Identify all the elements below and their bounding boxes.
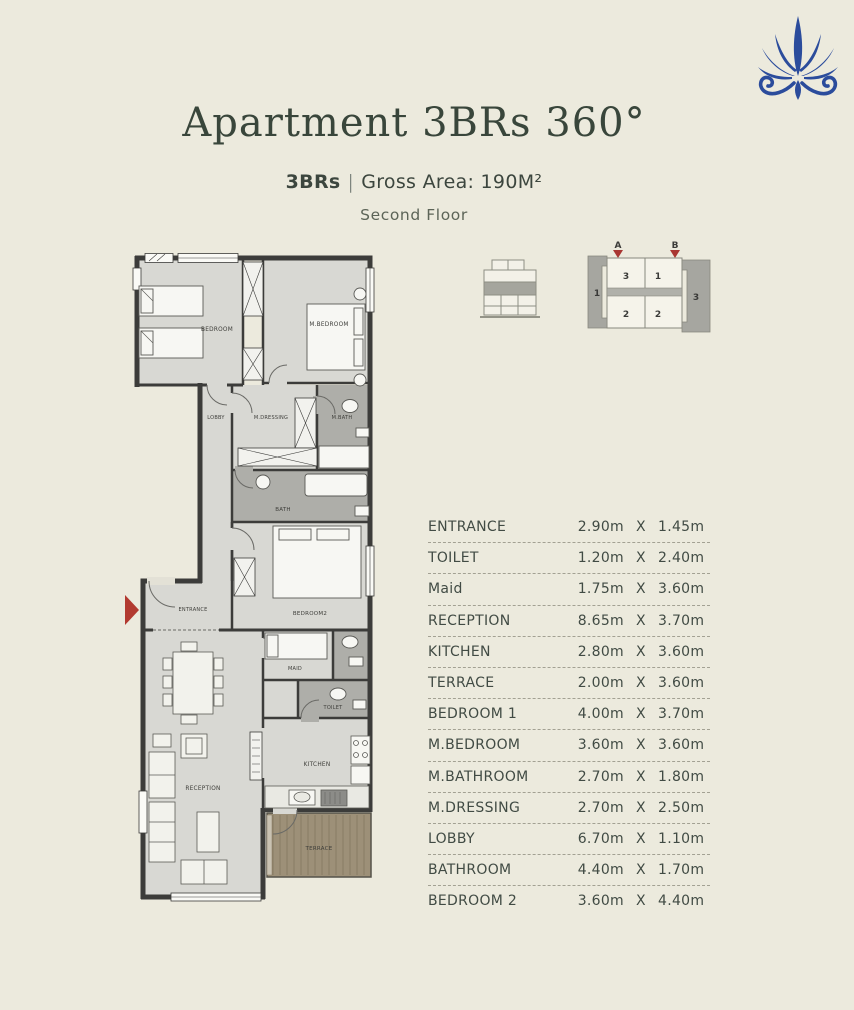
bedroom2-label: BEDROOM2 [293,611,327,617]
keyplan-corridor [607,288,682,296]
marker-a-label: A [615,241,622,251]
unit-number: 3 [623,272,629,282]
marker-a-arrow-icon [613,250,623,258]
room-name: BEDROOM 2 [428,893,568,909]
room-name: TOILET [428,550,568,566]
table-row: M.BEDROOM3.60mX3.60m [428,730,710,761]
table-row: RECEPTION8.65mX3.70m [428,606,710,637]
dim-depth: 1.10m [658,831,710,847]
table-row: LOBBY6.70mX1.10m [428,824,710,855]
unit-number: 1 [594,289,600,299]
dim-depth: 3.70m [658,706,710,722]
dim-width: 3.60m [568,893,624,909]
table-row: TERRACE2.00mX3.60m [428,668,710,699]
bath-label: BATH [275,507,291,513]
table-row: Maid1.75mX3.60m [428,574,710,605]
gross-area: Gross Area: 190M² [361,171,542,193]
dim-x: X [624,675,658,691]
key-plan-diagram: A B 1 3 3 1 2 2 [584,234,714,336]
unit-number: 2 [623,310,629,320]
maid-label: MAID [288,666,302,672]
unit-number: 2 [655,310,661,320]
dim-width: 4.00m [568,706,624,722]
room-entrance [143,581,232,628]
dim-width: 8.65m [568,613,624,629]
dim-width: 2.70m [568,769,624,785]
unit-number: 1 [655,272,661,282]
dim-x: X [624,613,658,629]
dim-depth: 3.60m [658,675,710,691]
dim-width: 2.90m [568,519,624,535]
table-row: TOILET1.20mX2.40m [428,543,710,574]
dim-depth: 4.40m [658,893,710,909]
table-row: M.BATHROOM2.70mX1.80m [428,762,710,793]
dim-width: 1.20m [568,550,624,566]
dim-width: 6.70m [568,831,624,847]
unit-type: 3BRs [286,171,341,193]
dim-depth: 2.50m [658,800,710,816]
room-bedroom [135,258,243,385]
room-name: BATHROOM [428,862,568,878]
table-row: ENTRANCE2.90mX1.45m [428,512,710,543]
dim-x: X [624,831,658,847]
dim-x: X [624,581,658,597]
dim-depth: 3.60m [658,737,710,753]
dim-x: X [624,862,658,878]
dim-x: X [624,893,658,909]
lobby-label: LOBBY [207,415,225,421]
brochure-page: Apartment 3BRs 360° 3BRs|Gross Area: 190… [0,0,854,1010]
dim-depth: 3.70m [658,613,710,629]
dim-x: X [624,737,658,753]
dim-depth: 3.60m [658,644,710,660]
room-name: RECEPTION [428,613,568,629]
room-name: LOBBY [428,831,568,847]
floor-label: Second Floor [0,206,828,224]
unit-number: 3 [693,293,699,303]
toilet-label: TOILET [323,705,344,711]
floor-plan: BEDROOM M.BEDROOM LOBBY M.DRESSING M.BAT… [123,248,375,908]
dim-depth: 1.70m [658,862,710,878]
reception-label: RECEPTION [185,786,220,792]
page-title: Apartment 3BRs 360° [0,100,828,146]
table-row: BEDROOM 14.00mX3.70m [428,699,710,730]
dim-x: X [624,550,658,566]
dim-width: 2.70m [568,800,624,816]
room-name: M.BATHROOM [428,769,568,785]
table-row: M.DRESSING2.70mX2.50m [428,793,710,824]
subtitle: 3BRs|Gross Area: 190M² [0,171,828,193]
dim-depth: 3.60m [658,581,710,597]
dim-depth: 1.45m [658,519,710,535]
entrance-label: ENTRANCE [178,607,207,613]
dim-width: 3.60m [568,737,624,753]
dim-width: 4.40m [568,862,624,878]
room-name: M.BEDROOM [428,737,568,753]
dim-depth: 2.40m [658,550,710,566]
dim-depth: 1.80m [658,769,710,785]
m-bedroom-label: M.BEDROOM [309,322,348,328]
dim-x: X [624,769,658,785]
m-bath-label: M.BATH [332,415,353,421]
bedroom-label: BEDROOM [201,327,233,333]
m-dressing-label: M.DRESSING [254,415,288,421]
subtitle-separator: | [341,171,362,193]
dim-x: X [624,644,658,660]
marker-b-arrow-icon [670,250,680,258]
table-row: KITCHEN2.80mX3.60m [428,637,710,668]
table-row: BATHROOM4.40mX1.70m [428,855,710,886]
palmette-logo-icon [748,10,848,110]
room-hall [263,680,298,720]
entrance-arrow-icon [125,595,139,625]
dim-width: 1.75m [568,581,624,597]
dim-width: 2.00m [568,675,624,691]
room-terrace [267,813,371,877]
dim-x: X [624,706,658,722]
terrace-label: TERRACE [305,846,333,852]
kitchen-label: KITCHEN [304,762,331,768]
room-name: BEDROOM 1 [428,706,568,722]
building-elevation-diagram [480,254,540,320]
room-name: M.DRESSING [428,800,568,816]
dimensions-table: ENTRANCE2.90mX1.45m TOILET1.20mX2.40m Ma… [428,512,710,916]
dim-x: X [624,519,658,535]
table-row: BEDROOM 23.60mX4.40m [428,886,710,916]
room-name: KITCHEN [428,644,568,660]
room-name: TERRACE [428,675,568,691]
marker-b-label: B [672,241,679,251]
room-name: Maid [428,581,568,597]
dim-width: 2.80m [568,644,624,660]
highlighted-floor [484,282,536,295]
dim-x: X [624,800,658,816]
room-name: ENTRANCE [428,519,568,535]
